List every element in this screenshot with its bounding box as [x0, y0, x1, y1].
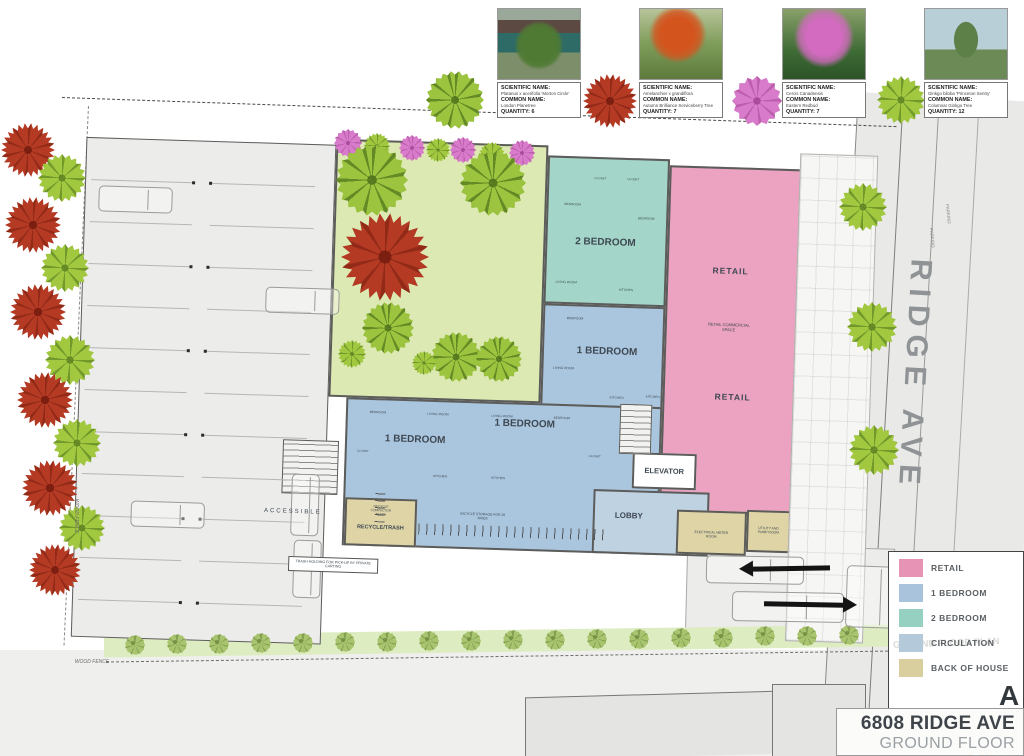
quantity-value: QUANTITY: 6 — [501, 109, 577, 115]
quantity-value: QUANTITY: 7 — [643, 109, 719, 115]
tree-info-box: SCIENTIFIC NAME:Amelanchier x grandiflor… — [639, 82, 723, 118]
sheet-title: GROUND FLOOR PLAN — [837, 735, 1015, 756]
legend-row: RETAIL — [899, 559, 1023, 577]
legend-label: 1 BEDROOM — [931, 588, 987, 598]
legend-row: BACK OF HOUSE — [899, 659, 1023, 677]
legend-row: CIRCULATION — [899, 634, 1023, 652]
stall-marker-dot — [187, 349, 190, 352]
stall-marker-dot — [209, 182, 212, 185]
legend-label: 2 BEDROOM — [931, 613, 987, 623]
stall-marker-dot — [201, 434, 204, 437]
plan-label: 1 BEDROOM — [494, 418, 555, 432]
legend-swatch — [899, 584, 923, 602]
plan-label: LIVING ROOM — [427, 412, 448, 417]
plan-label: ELECTRICAL METER ROOM — [694, 530, 728, 540]
legend-swatch — [899, 559, 923, 577]
legend-swatch — [899, 634, 923, 652]
ground-floor-plan-sheet: RIDGE AVE 2 BEDROOM1 BEDROOM1 BEDROOM1 B… — [0, 0, 1024, 756]
plan-label: ELEVATOR — [644, 466, 684, 477]
stall-marker-dot — [184, 433, 187, 436]
stall-marker-dot — [206, 266, 209, 269]
field-value: Eastern Redbud — [786, 103, 862, 108]
plan-label: BEDROOM — [370, 410, 387, 415]
legend-label: RETAIL — [931, 563, 964, 573]
field-value: Platanus x acerifolia 'Morton Circle' — [501, 91, 577, 96]
plan-label: RETAIL — [712, 265, 748, 277]
plan-label: RETAIL — [714, 391, 750, 403]
plan-label: KITCHEN — [433, 474, 447, 478]
plan-label: BEDROOM — [638, 216, 655, 221]
quantity-value: QUANTITY: 12 — [928, 109, 1004, 115]
plan-label: LIVING ROOM — [491, 414, 512, 419]
plan-label: CLOSET — [594, 177, 606, 181]
tree-photo — [782, 8, 866, 80]
field-value: London Planetree — [501, 103, 577, 108]
plan-label: BEDROOM — [554, 416, 571, 421]
project-address: 6808 RIDGE AVE — [837, 713, 1015, 735]
field-value: Cercis Canadensis — [786, 91, 862, 96]
plan-label: UTILITY AND PUMP ROOM — [753, 526, 783, 535]
plan-label: 2 BEDROOM — [575, 236, 636, 250]
plan-label: 1 BEDROOM — [577, 345, 638, 359]
tree-info-box: SCIENTIFIC NAME:Ginkgo biloba 'Princeton… — [924, 82, 1008, 118]
field-value: Autumn Brilliance Serviceberry Tree — [643, 103, 719, 108]
plan-label: RECYCLE COMPACTOR TRASH — [365, 504, 397, 517]
car-outline — [290, 474, 320, 537]
car-outline — [98, 185, 173, 213]
plan-label: KITCHEN — [619, 288, 633, 292]
plan-label: KITCHEN — [609, 395, 623, 399]
field-value: Amelanchier x grandiflora — [643, 91, 719, 96]
field-value: Ginkgo biloba 'Princeton Sentry' — [928, 91, 1004, 96]
two-bedroom-unit-zone — [543, 155, 670, 307]
plan-label: BEDROOM — [564, 202, 581, 207]
plan-label: CLOSET — [589, 455, 601, 459]
legend-label: BACK OF HOUSE — [931, 663, 1009, 673]
tree-info-box: SCIENTIFIC NAME:Cercis CanadensisCOMMON … — [782, 82, 866, 118]
legend-swatch — [899, 659, 923, 677]
plan-label: WOOD FENCE — [75, 659, 109, 665]
tree-photo — [639, 8, 723, 80]
legend-label: CIRCULATION — [931, 638, 994, 648]
title-block: 6808 RIDGE AVE GROUND FLOOR PLAN — [836, 708, 1024, 756]
tree-legend-card: SCIENTIFIC NAME:Platanus x acerifolia 'M… — [497, 8, 581, 118]
tree-icon-pink — [732, 76, 782, 126]
plan-label: BICYCLE STORAGE FOR 28 BIKES — [460, 512, 506, 522]
plan-label: RECYCLE/TRASH — [357, 524, 404, 532]
tree-photo — [497, 8, 581, 80]
plan-label: LOBBY — [615, 511, 643, 522]
tree-photo — [924, 8, 1008, 80]
plan-label: KITCHEN — [646, 395, 660, 399]
legend-row: 1 BEDROOM — [899, 584, 1023, 602]
stall-marker-dot — [192, 181, 195, 184]
tree-legend-card: SCIENTIFIC NAME:Cercis CanadensisCOMMON … — [782, 8, 866, 118]
plan-label: WOOD FENCE — [73, 499, 79, 533]
plan-label: RETAIL COMMERCIAL SPACE — [706, 321, 752, 332]
stair — [619, 404, 653, 455]
tree-info-box: SCIENTIFIC NAME:Platanus x acerifolia 'M… — [497, 82, 581, 118]
plan-label: LIVING ROOM — [553, 366, 574, 371]
quantity-value: QUANTITY: 7 — [786, 109, 862, 115]
stall-marker-dot — [196, 602, 199, 605]
car-outline — [265, 287, 340, 315]
plan-label: TRASH HOLDING FOR PICK-UP BY PRIVATE CAR… — [288, 556, 378, 574]
plan-label: BEDROOM — [567, 316, 584, 321]
plan-label: LIVING ROOM — [555, 280, 576, 285]
legend-row: 2 BEDROOM — [899, 609, 1023, 627]
adjacent-building — [525, 691, 779, 756]
stall-marker-dot — [179, 601, 182, 604]
tree-legend-card: SCIENTIFIC NAME:Amelanchier x grandiflor… — [639, 8, 723, 118]
plan-label: CLOSET — [357, 450, 369, 454]
tree-legend-card: SCIENTIFIC NAME:Ginkgo biloba 'Princeton… — [924, 8, 1008, 118]
legend-swatch — [899, 609, 923, 627]
stall-marker-dot — [189, 265, 192, 268]
plan-label: KITCHEN — [491, 476, 505, 480]
plan-label: 1 BEDROOM — [385, 433, 446, 447]
legend-rows: RETAIL1 BEDROOM2 BEDROOMCIRCULATIONBACK … — [889, 559, 1023, 677]
field-value: Columnar Ginkgo Tree — [928, 103, 1004, 108]
car-outline — [130, 500, 205, 528]
tree-icon-pink — [399, 135, 425, 161]
plan-label: CLOSET — [627, 178, 639, 182]
stall-marker-dot — [204, 350, 207, 353]
